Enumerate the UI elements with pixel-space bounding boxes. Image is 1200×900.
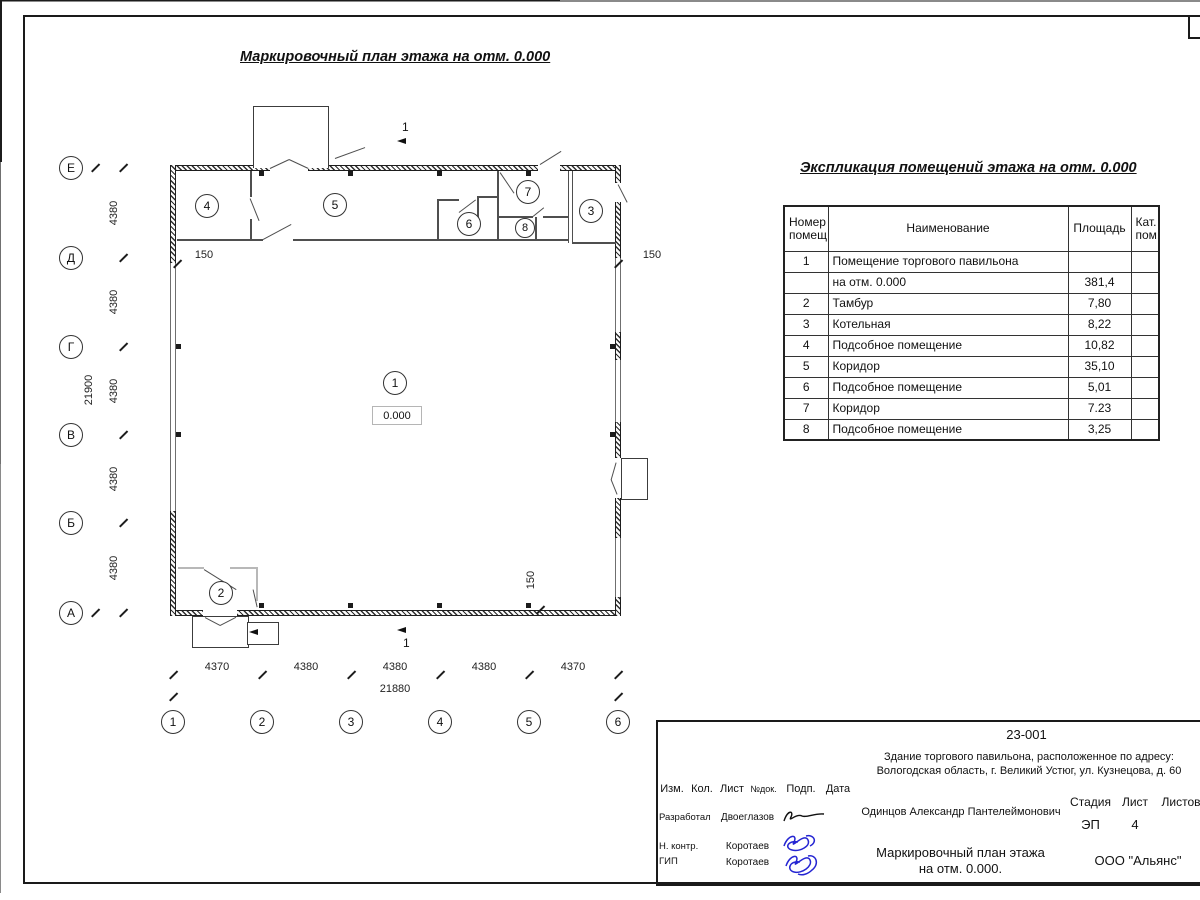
- dim-4380: 4380: [108, 361, 120, 421]
- room3-south-wall: [572, 242, 616, 244]
- room-bubble-5: 5: [323, 193, 347, 217]
- col-header-number: Номер помещ.: [784, 206, 828, 251]
- room-bubble-3: 3: [579, 199, 603, 223]
- table-row: на отм. 0.000 381,4: [784, 272, 1159, 293]
- col-header-name: Наименование: [828, 206, 1068, 251]
- level-mark: 0.000: [372, 406, 422, 425]
- tb-drawing-title-line1: Маркировочный план этажа: [853, 845, 1068, 860]
- cell-num: 1: [784, 251, 828, 272]
- dim-150-right: 150: [632, 249, 672, 261]
- cell-cat: [1131, 419, 1159, 440]
- section-label-bottom: 1: [403, 636, 410, 650]
- dim-4380: 4380: [276, 661, 336, 673]
- wall-right: [615, 202, 621, 258]
- axis-bubble-4: 4: [428, 710, 452, 734]
- col-header-area: Площадь: [1068, 206, 1131, 251]
- cell-num: [784, 272, 828, 293]
- tb-col-izm: Изм.: [656, 781, 688, 796]
- cell-num: 5: [784, 356, 828, 377]
- axis-bubble-1: 1: [161, 710, 185, 734]
- axis-bubble-2: 2: [250, 710, 274, 734]
- room-bubble-1: 1: [383, 371, 407, 395]
- dim-4370: 4370: [187, 661, 247, 673]
- room7-8-divider: [543, 216, 568, 218]
- table-row: 4 Подсобное помещение 10,82: [784, 335, 1159, 356]
- column-mark: [176, 344, 181, 349]
- axis-label: 4: [437, 715, 444, 729]
- storefront-right: [615, 538, 621, 597]
- explication-title: Экспликация помещений этажа на отм. 0.00…: [800, 160, 1135, 176]
- room6-wall: [437, 199, 439, 241]
- dim-4380: 4380: [108, 183, 120, 243]
- vestibule-wall: [178, 567, 204, 569]
- tb-name-korotaev1: Коротаев: [716, 839, 779, 854]
- tb-role-razrabotal: Разработал: [659, 812, 711, 823]
- axis-label: В: [67, 428, 75, 442]
- wall-right: [615, 422, 621, 458]
- tb-col-podp: Подп.: [779, 781, 823, 796]
- tb-stage-label: Стадия: [1068, 794, 1113, 809]
- room-number: 2: [218, 586, 225, 600]
- tb-line: [0, 0, 148, 1]
- cell-cat: [1131, 398, 1159, 419]
- cell-cat: [1131, 272, 1159, 293]
- dim-21880: 21880: [360, 683, 430, 695]
- cell-name: на отм. 0.000: [828, 272, 1068, 293]
- tb-col-ndok: №док.: [748, 781, 779, 796]
- column-mark: [526, 171, 531, 176]
- tb-name-korotaev2: Коротаев: [716, 855, 779, 870]
- cell-cat: [1131, 314, 1159, 335]
- tb-line: [0, 0, 1, 45]
- room-bubble-2: 2: [209, 581, 233, 605]
- cell-name: Подсобное помещение: [828, 419, 1068, 440]
- wall-bottom: [237, 610, 621, 616]
- porch-top: [253, 106, 329, 168]
- cell-num: 7: [784, 398, 828, 419]
- room4-partition: [250, 171, 252, 197]
- wall-right: [615, 332, 621, 360]
- cell-area: 7,80: [1068, 293, 1131, 314]
- tb-col-list: Лист: [716, 781, 748, 796]
- tb-author: Одинцов Александр Пантелеймонович: [855, 804, 1067, 820]
- tb-name-dvoeglazov: Двоеглазов: [716, 810, 779, 825]
- column-mark: [437, 603, 442, 608]
- table-row: 1 Помещение торгового павильона: [784, 251, 1159, 272]
- cell-name: Коридор: [828, 398, 1068, 419]
- room-number: 1: [392, 376, 399, 390]
- cell-num: 2: [784, 293, 828, 314]
- table-row: 6 Подсобное помещение 5,01: [784, 377, 1159, 398]
- cell-cat: [1131, 335, 1159, 356]
- section-label-top: 1: [402, 120, 409, 134]
- axis-bubble-E: Е: [59, 156, 83, 180]
- axis-label: Б: [67, 516, 75, 530]
- explication-table: Номер помещ. Наименование Площадь Кат. п…: [783, 205, 1160, 441]
- tb-doc-number: 23-001: [853, 726, 1200, 742]
- axis-bubble-5: 5: [517, 710, 541, 734]
- wall-top: [308, 165, 538, 171]
- cell-area: 3,25: [1068, 419, 1131, 440]
- room6-wall: [437, 199, 459, 201]
- cell-cat: [1131, 377, 1159, 398]
- cell-num: 4: [784, 335, 828, 356]
- table-row: 5 Коридор 35,10: [784, 356, 1159, 377]
- room-number: 5: [332, 198, 339, 212]
- tb-sheet-value: 4: [1113, 815, 1157, 833]
- dim-4380: 4380: [108, 272, 120, 332]
- section-arrow: [397, 138, 406, 144]
- dim-4380: 4380: [108, 538, 120, 598]
- cell-area: [1068, 251, 1131, 272]
- cell-name: Помещение торгового павильона: [828, 251, 1068, 272]
- entry-arrow-head: [249, 629, 258, 635]
- room-number: 7: [525, 185, 532, 199]
- room-number: 3: [588, 204, 595, 218]
- wall-right: [615, 165, 621, 183]
- axis-label: 6: [615, 715, 622, 729]
- cell-area: 7.23: [1068, 398, 1131, 419]
- storefront-right: [615, 360, 621, 422]
- room8-partition: [535, 217, 537, 240]
- vestibule-wall: [256, 567, 258, 601]
- room3-west-wall: [568, 171, 573, 243]
- dim-4370: 4370: [543, 661, 603, 673]
- vestibule-wall: [230, 567, 258, 569]
- column-mark: [348, 603, 353, 608]
- axis-bubble-G: Г: [59, 335, 83, 359]
- dim-4380: 4380: [454, 661, 514, 673]
- cell-cat: [1131, 356, 1159, 377]
- porch-bottom: [192, 616, 249, 648]
- axis-bubble-D: Д: [59, 246, 83, 270]
- room4-partition: [250, 219, 252, 241]
- storefront-right: [615, 258, 621, 332]
- table-row: 7 Коридор 7.23: [784, 398, 1159, 419]
- cell-area: 381,4: [1068, 272, 1131, 293]
- column-mark: [437, 171, 442, 176]
- tb-sheet-label: Лист: [1113, 794, 1157, 809]
- axis-bubble-B: Б: [59, 511, 83, 535]
- cell-num: 6: [784, 377, 828, 398]
- column-mark: [176, 432, 181, 437]
- tb-col-kol: Кол.: [688, 781, 716, 796]
- room6-wall: [477, 196, 498, 198]
- cell-name: Подсобное помещение: [828, 335, 1068, 356]
- axis-label: 2: [259, 715, 266, 729]
- column-mark: [348, 171, 353, 176]
- signature-razrabotal: [780, 805, 828, 827]
- signature-nkontr-gip: [778, 832, 830, 880]
- cell-area: 35,10: [1068, 356, 1131, 377]
- column-mark: [610, 344, 615, 349]
- corridor-wall: [293, 239, 568, 241]
- tb-role-gip: ГИП: [659, 856, 678, 867]
- room-bubble-6: 6: [457, 212, 481, 236]
- tb-sheets-label: Листов: [1157, 794, 1200, 809]
- axis-label: Д: [67, 251, 75, 265]
- room-bubble-4: 4: [195, 194, 219, 218]
- section-arrow: [397, 627, 406, 633]
- side-door-landing: [621, 458, 648, 500]
- plan-title: Маркировочный план этажа на отм. 0.000: [240, 49, 550, 65]
- axis-bubble-6: 6: [606, 710, 630, 734]
- cell-area: 8,22: [1068, 314, 1131, 335]
- drawing-sheet: Маркировочный план этажа на отм. 0.000 4…: [0, 0, 1200, 900]
- table-row: 3 Котельная 8,22: [784, 314, 1159, 335]
- dim-4380: 4380: [108, 449, 120, 509]
- dim-4380: 4380: [365, 661, 425, 673]
- cell-num: 8: [784, 419, 828, 440]
- cell-area: 10,82: [1068, 335, 1131, 356]
- cell-area: 5,01: [1068, 377, 1131, 398]
- cell-name: Подсобное помещение: [828, 377, 1068, 398]
- frame-corner-box: [1188, 15, 1200, 39]
- axis-label: А: [67, 606, 75, 620]
- cell-name: Коридор: [828, 356, 1068, 377]
- cell-name: Котельная: [828, 314, 1068, 335]
- axis-label: Г: [68, 340, 75, 354]
- wall-left: [170, 511, 176, 616]
- axis-label: 5: [526, 715, 533, 729]
- storefront-left: [170, 263, 176, 511]
- axis-label: 1: [170, 715, 177, 729]
- dim-150-left: 150: [184, 249, 224, 261]
- room-bubble-7: 7: [516, 180, 540, 204]
- tb-object-line1: Здание торгового павильона, расположенно…: [853, 750, 1200, 764]
- tb-role-nkontr: Н. контр.: [659, 841, 698, 852]
- level-value: 0.000: [383, 410, 411, 422]
- room7-west-wall: [497, 171, 499, 241]
- room-number: 4: [204, 199, 211, 213]
- cell-cat: [1131, 293, 1159, 314]
- cell-num: 3: [784, 314, 828, 335]
- col-header-cat: Кат. пом.: [1131, 206, 1159, 251]
- axis-bubble-3: 3: [339, 710, 363, 734]
- column-mark: [610, 432, 615, 437]
- axis-bubble-A: А: [59, 601, 83, 625]
- table-row: 2 Тамбур 7,80: [784, 293, 1159, 314]
- room-number: 6: [466, 217, 473, 231]
- wall-right: [615, 597, 621, 616]
- tb-col-data: Дата: [823, 781, 853, 796]
- axis-bubble-V: В: [59, 423, 83, 447]
- dim-150-bottom: 150: [525, 560, 537, 600]
- tb-company: ООО "Альянс": [1068, 852, 1200, 868]
- room-number: 8: [522, 222, 528, 234]
- room-bubble-8: 8: [515, 218, 535, 238]
- table-row: 8 Подсобное помещение 3,25: [784, 419, 1159, 440]
- cell-cat: [1131, 251, 1159, 272]
- dim-21900: 21900: [83, 355, 95, 425]
- column-mark: [259, 171, 264, 176]
- wall-left: [170, 165, 176, 263]
- column-mark: [259, 603, 264, 608]
- tb-object-line2: Вологодская область, г. Великий Устюг, у…: [853, 764, 1200, 778]
- axis-label: Е: [67, 161, 75, 175]
- tb-stage-value: ЭП: [1068, 815, 1113, 833]
- column-mark: [526, 603, 531, 608]
- tb-drawing-title-line2: на отм. 0.000.: [853, 861, 1068, 876]
- cell-name: Тамбур: [828, 293, 1068, 314]
- wall-right: [615, 498, 621, 538]
- axis-label: 3: [348, 715, 355, 729]
